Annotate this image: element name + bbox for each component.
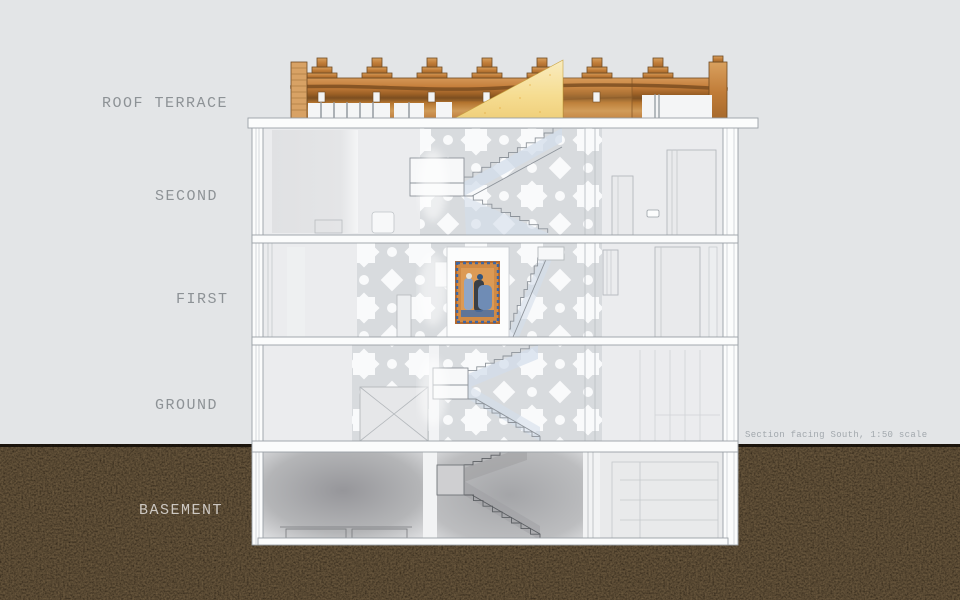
wall-left (252, 122, 263, 545)
basement-rooms (263, 446, 723, 540)
building-section (252, 122, 738, 545)
wall-right (723, 122, 738, 545)
wall-socket (647, 210, 659, 217)
floor-label-ground: GROUND (155, 397, 218, 414)
slab-basement-floor (258, 538, 728, 545)
slab-ground (252, 441, 738, 452)
armchair (372, 212, 394, 233)
slab-second (252, 235, 738, 243)
floor-label-basement: BASEMENT (139, 502, 223, 519)
floor-label-first: FIRST (176, 291, 229, 308)
roof-slab (248, 118, 758, 128)
miniature-painting (455, 261, 500, 324)
slab-first (252, 337, 738, 345)
cabinet-first (655, 247, 700, 337)
floor-label-roof-terrace: ROOF TERRACE (102, 95, 228, 112)
architectural-section-page: ROOF TERRACE SECOND FIRST GROUND BASEMEN… (0, 0, 960, 600)
atrium-glow (419, 149, 447, 426)
floor-label-second: SECOND (155, 188, 218, 205)
door-second (667, 150, 716, 235)
section-caption: Section facing South, 1:50 scale (745, 430, 927, 440)
